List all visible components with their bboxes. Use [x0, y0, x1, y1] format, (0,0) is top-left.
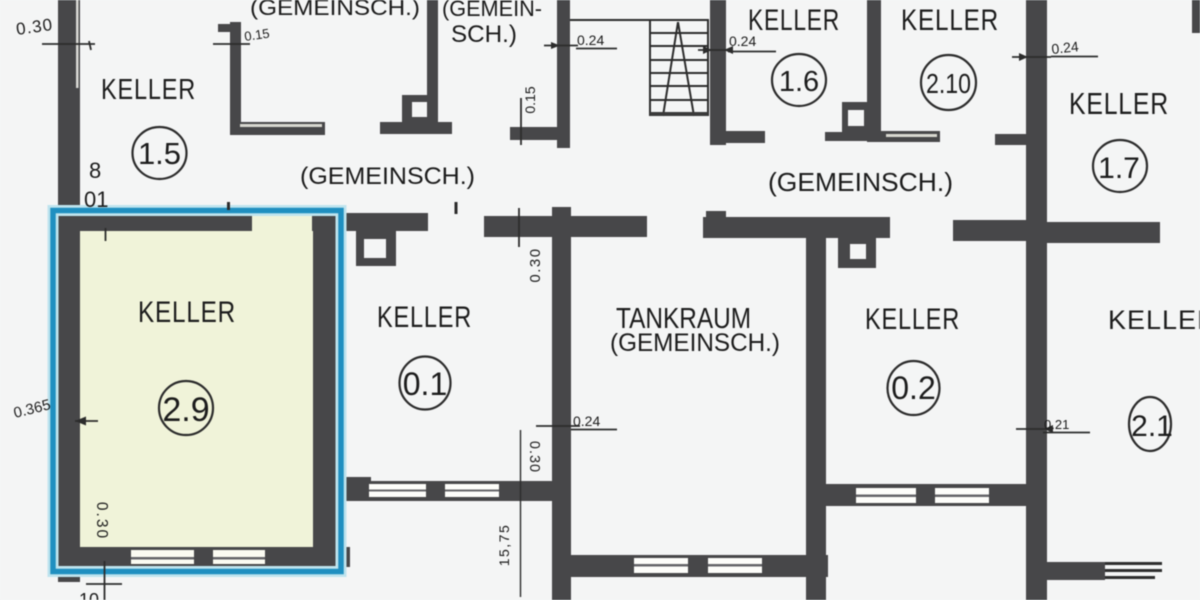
- svg-text:0.30: 0.30: [93, 502, 110, 540]
- svg-text:2.9: 2.9: [162, 391, 209, 429]
- svg-text:KELLER: KELLER: [377, 301, 472, 334]
- svg-text:(GEMEIN-: (GEMEIN-: [442, 0, 542, 21]
- svg-text:1.5: 1.5: [138, 136, 181, 171]
- svg-text:2.1: 2.1: [1131, 410, 1173, 443]
- svg-text:0.24: 0.24: [1051, 38, 1080, 57]
- svg-text:0.30: 0.30: [526, 441, 542, 473]
- svg-text:(GEMEINSCH.): (GEMEINSCH.): [250, 0, 420, 20]
- svg-text:8: 8: [89, 158, 101, 183]
- svg-text:0.2: 0.2: [891, 370, 935, 406]
- svg-text:0.1: 0.1: [403, 366, 447, 402]
- svg-text:KELLER: KELLER: [1069, 86, 1169, 121]
- svg-text:KELLER: KELLER: [901, 4, 999, 37]
- svg-text:0.15: 0.15: [522, 86, 538, 113]
- svg-text:01: 01: [84, 187, 108, 212]
- svg-text:0.24: 0.24: [577, 32, 604, 48]
- svg-text:(GEMEINSCH.): (GEMEINSCH.): [610, 329, 780, 357]
- svg-text:1.7: 1.7: [1098, 152, 1140, 185]
- svg-text:KELLER: KELLER: [748, 4, 840, 37]
- svg-text:(GEMEINSCH.): (GEMEINSCH.): [300, 163, 475, 190]
- svg-text:SCH.): SCH.): [451, 21, 517, 48]
- svg-text:KELLER: KELLER: [865, 303, 960, 336]
- svg-text:0.21: 0.21: [1044, 417, 1069, 432]
- svg-text:2.10: 2.10: [926, 68, 971, 99]
- svg-text:10: 10: [79, 590, 99, 600]
- svg-text:0.24: 0.24: [573, 413, 600, 429]
- svg-text:KELLER: KELLER: [138, 296, 236, 329]
- svg-text:15,75: 15,75: [496, 524, 512, 567]
- svg-text:1.6: 1.6: [779, 66, 819, 98]
- svg-text:(GEMEINSCH.): (GEMEINSCH.): [768, 167, 953, 197]
- svg-text:0.30: 0.30: [527, 247, 544, 282]
- svg-text:KELLER: KELLER: [101, 74, 196, 106]
- svg-text:KELLER: KELLER: [1108, 305, 1200, 335]
